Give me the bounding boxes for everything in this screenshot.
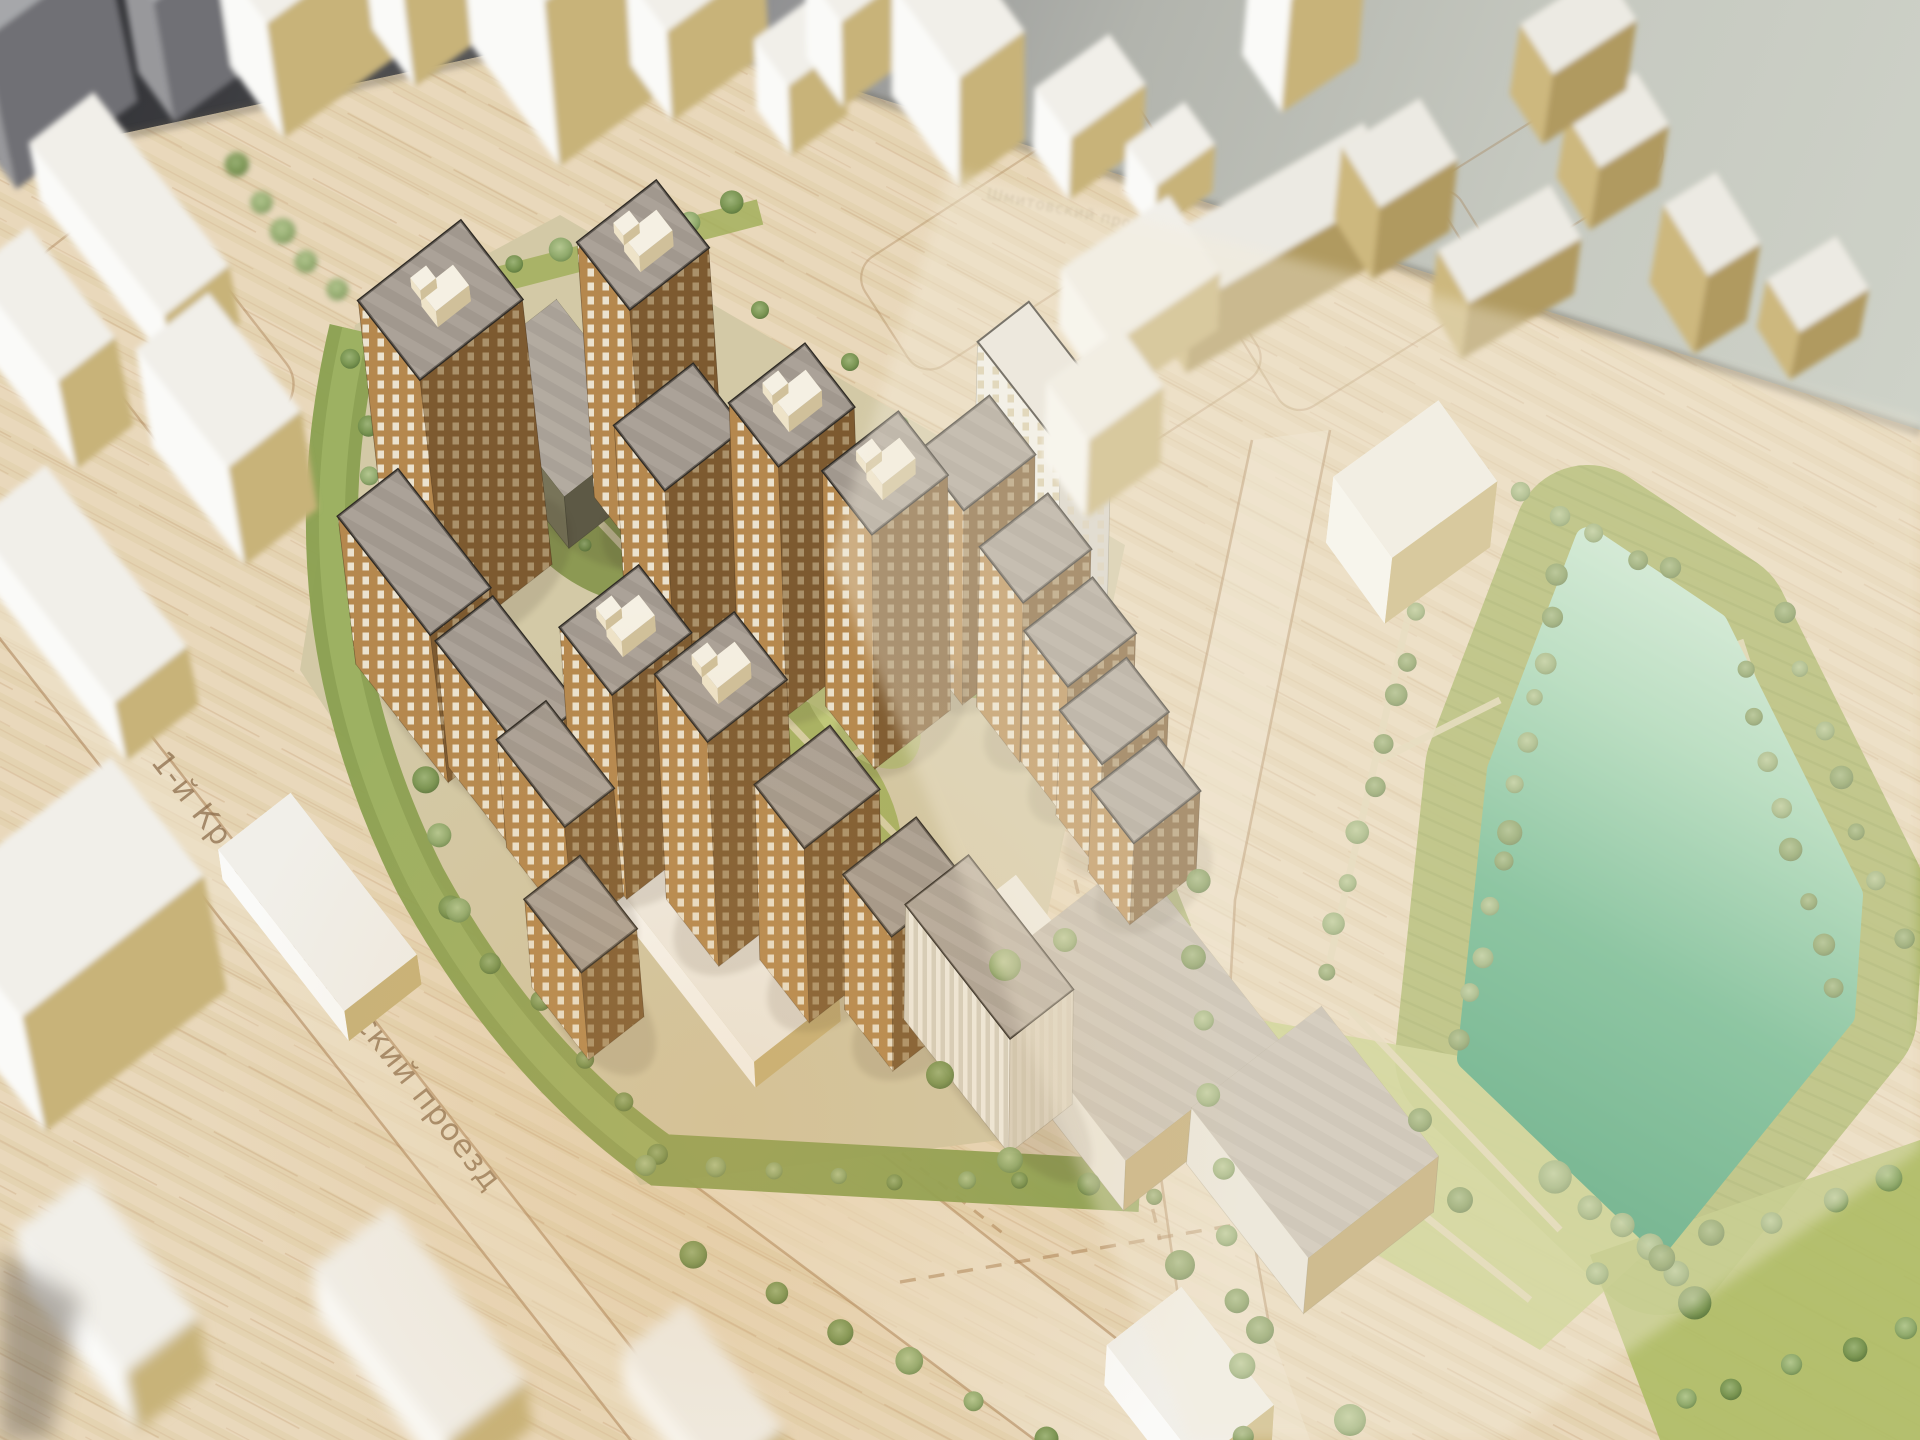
warm-glow xyxy=(0,0,1920,1440)
model-photo: 1-й Красногвардейский проезд Шмитовский … xyxy=(0,0,1920,1440)
scene-svg: 1-й Красногвардейский проезд Шмитовский … xyxy=(0,0,1920,1440)
light-overlays xyxy=(0,0,1920,1440)
